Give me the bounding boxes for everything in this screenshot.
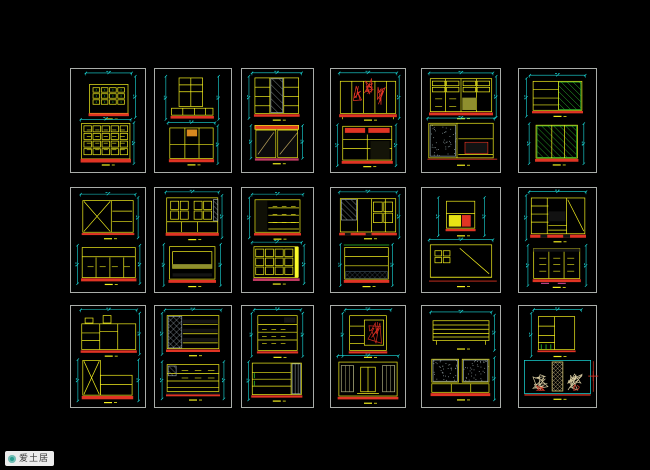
sheet-panel-r1c4[interactable] [330, 68, 406, 173]
sheet-panel-r3c3[interactable] [241, 305, 314, 408]
elevation-drawings-svg [155, 306, 231, 407]
sheet-panel-r2c4[interactable] [330, 187, 406, 293]
elevation-drawings-svg [519, 306, 596, 407]
sheet-panel-r2c2[interactable] [154, 187, 232, 293]
elevation-drawings-svg [71, 69, 145, 172]
sheet-panel-r3c6[interactable] [518, 305, 597, 408]
elevation-drawings-svg [422, 69, 500, 172]
sheet-panel-r1c3[interactable] [241, 68, 314, 173]
sheet-panel-r3c1[interactable] [70, 305, 146, 408]
sheet-panel-r1c1[interactable] [70, 68, 146, 173]
sheet-panel-r1c5[interactable] [421, 68, 501, 173]
sheet-panel-r1c2[interactable] [154, 68, 232, 173]
elevation-drawings-svg [331, 188, 405, 292]
elevation-drawings-svg [519, 188, 596, 292]
sheet-panel-r2c3[interactable] [241, 187, 314, 293]
elevation-drawings-svg [331, 69, 405, 172]
elevation-drawings-svg [242, 306, 313, 407]
elevation-drawings-svg [71, 188, 145, 292]
watermark-badge: 爱土居 [5, 451, 54, 466]
cad-viewport[interactable]: 爱土居 [0, 0, 650, 470]
watermark-label: 爱土居 [19, 454, 49, 463]
elevation-drawings-svg [331, 306, 405, 407]
sheet-panel-r3c5[interactable] [421, 305, 501, 408]
elevation-drawings-svg [422, 188, 500, 292]
sheet-panel-r3c4[interactable] [330, 305, 406, 408]
sheet-panel-r2c5[interactable] [421, 187, 501, 293]
sheet-panel-r2c1[interactable] [70, 187, 146, 293]
sheet-panel-r1c6[interactable] [518, 68, 597, 173]
elevation-drawings-svg [422, 306, 500, 407]
elevation-drawings-svg [242, 69, 313, 172]
elevation-drawings-svg [155, 188, 231, 292]
elevation-drawings-svg [155, 69, 231, 172]
elevation-drawings-svg [71, 306, 145, 407]
sheet-panel-r3c2[interactable] [154, 305, 232, 408]
watermark-logo-icon [8, 455, 16, 463]
sheet-panel-r2c6[interactable] [518, 187, 597, 293]
elevation-drawings-svg [242, 188, 313, 292]
elevation-drawings-svg [519, 69, 596, 172]
